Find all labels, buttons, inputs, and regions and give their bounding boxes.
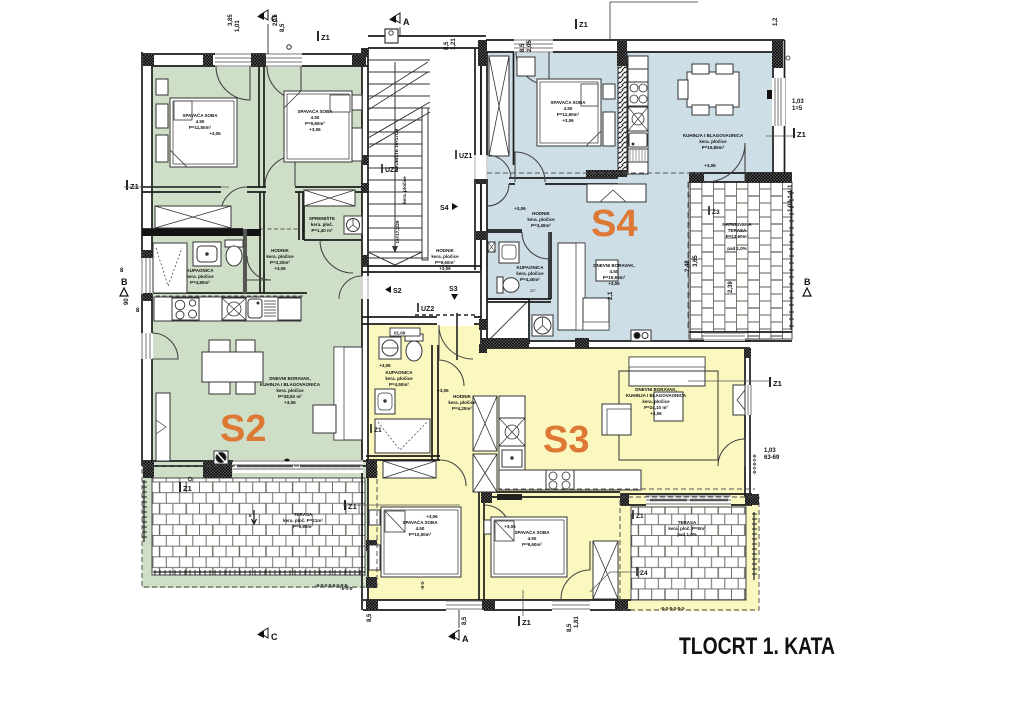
svg-text:kera. pločice: kera. pločice [699,139,727,144]
svg-text:S2: S2 [220,408,266,450]
svg-text:1,03: 1,03 [792,99,804,105]
svg-text:kera. pločice: kera. pločice [527,217,555,222]
svg-text:4.50: 4.50 [311,115,320,120]
svg-text:SPREMIŠTE: SPREMIŠTE [309,214,335,221]
svg-text:P=1,40 m²: P=1,40 m² [311,228,333,233]
svg-text:4.50: 4.50 [564,106,573,111]
svg-text:3,65: 3,65 [693,255,699,267]
svg-text:NATKRIVENA: NATKRIVENA [722,222,752,227]
svg-text:4.50: 4.50 [610,269,619,274]
svg-text:Z1: Z1 [636,513,644,520]
svg-text:+3,06: +3,06 [562,118,574,123]
svg-text:S4: S4 [591,203,637,245]
svg-text:SPAVAĆA SOBA: SPAVAĆA SOBA [182,111,218,118]
svg-text:UZ1: UZ1 [459,153,472,160]
svg-text:S2: S2 [393,288,402,295]
svg-text:SPAVAĆA SOBA: SPAVAĆA SOBA [297,107,333,114]
svg-text:kera. pločice: kera. pločice [276,388,304,393]
svg-text:Z1: Z1 [374,427,382,434]
svg-text:kera. pločice: kera. pločice [642,399,670,404]
svg-text:P=15,80m²: P=15,80m² [702,145,725,150]
svg-text:KUPAONICA: KUPAONICA [187,268,215,273]
svg-text:HODNIK: HODNIK [271,248,289,253]
svg-text:P=9,60m²: P=9,60m² [522,542,542,547]
svg-text:+3,06: +3,06 [704,163,716,168]
svg-text:8,5: 8,5 [367,613,373,622]
svg-text:+3,06: +3,06 [309,127,321,132]
svg-text:s: s [249,513,252,519]
svg-text:P=24,10 m²: P=24,10 m² [644,405,668,410]
svg-text:+3,06: +3,06 [650,411,662,416]
svg-text:8,5: 8,5 [567,623,573,632]
svg-text:KUPAONICA: KUPAONICA [386,370,414,375]
svg-text:P=3,40m²: P=3,40m² [531,223,551,228]
svg-text:TLOCRT 1. KATA: TLOCRT 1. KATA [679,633,835,660]
svg-text:HODNIK: HODNIK [453,394,471,399]
svg-text:2,39: 2,39 [728,281,734,293]
svg-text:2,1: 2,1 [608,291,614,300]
svg-text:P=4,40m²: P=4,40m² [520,277,540,282]
svg-text:C: C [271,632,278,642]
svg-text:Z1: Z1 [522,618,531,627]
svg-text:kera. pločice: kera. pločice [516,271,544,276]
svg-text:A: A [462,634,469,644]
svg-text:Z1: Z1 [183,484,192,493]
svg-text:4.50: 4.50 [528,536,537,541]
svg-text:16×17,2/29: 16×17,2/29 [395,220,400,243]
svg-text:P=12,60m²: P=12,60m² [557,112,580,117]
svg-text:+3,06: +3,06 [284,400,296,405]
svg-text:3,85: 3,85 [228,14,234,26]
svg-text:4.50: 4.50 [416,526,425,531]
svg-text:kera. pločice: kera. pločice [402,176,407,204]
svg-text:P=19,60m²: P=19,60m² [603,275,626,280]
svg-text:C: C [271,14,278,24]
svg-text:+3,06: +3,06 [504,524,516,529]
svg-text:01.00: 01.00 [394,331,406,336]
svg-text:KUHINJA I BLAGOVAONICA: KUHINJA I BLAGOVAONICA [260,382,321,387]
svg-text:1,01: 1,01 [235,20,241,32]
svg-text:P=9,80m²: P=9,80m² [293,524,313,529]
svg-text:kera. pločice: kera. pločice [385,376,413,381]
svg-text:SPAVAĆA SOBA: SPAVAĆA SOBA [402,518,438,525]
svg-text:90: 90 [124,298,130,305]
svg-text:+3,06: +3,06 [514,206,526,211]
svg-text:pad 1,0%: pad 1,0% [727,246,747,251]
svg-text:kera. ploč. P=8m²: kera. ploč. P=8m² [668,526,706,531]
svg-text:·8·0·8·0·8·: ·8·0·8·0·8· [752,453,757,475]
svg-text:kera. pločice: kera. pločice [266,254,294,259]
svg-text:+3,06: +3,06 [209,131,221,136]
svg-text:KUPAONICA: KUPAONICA [517,265,545,270]
svg-text:S4: S4 [440,205,449,212]
svg-text:+3,06: +3,06 [439,266,451,271]
svg-text:Z4: Z4 [640,570,648,577]
svg-text:kera. pločice: kera. pločice [431,254,459,259]
svg-text:P=10,50m²: P=10,50m² [409,532,432,537]
svg-text:KUHINJA I BLAGOVAONICA: KUHINJA I BLAGOVAONICA [683,133,744,138]
svg-text:kera. pločice: kera. pločice [448,400,476,405]
svg-text:HODNIK: HODNIK [436,248,454,253]
svg-text:·8·0·8·: ·8·0·8· [340,586,354,591]
svg-text:8,5: 8,5 [520,43,526,52]
svg-text:S3: S3 [449,286,458,293]
svg-text:TERASA: TERASA [294,512,313,517]
svg-text:Z1: Z1 [348,502,357,511]
svg-text:1,03: 1,03 [764,448,776,454]
svg-text:·8·0·: ·8·0· [420,580,425,590]
svg-text:1,2: 1,2 [773,17,779,26]
svg-text:+3,06: +3,06 [426,514,438,519]
svg-text:kera. ploč. P=21m²: kera. ploč. P=21m² [283,518,323,523]
svg-text:8,5: 8,5 [462,616,468,625]
svg-text:·8·0·8·0·8·0·: ·8·0·8·0·8·0· [660,606,686,611]
svg-text:+3,06: +3,06 [437,388,449,393]
svg-text:Z3: Z3 [712,209,720,216]
svg-text:Z1: Z1 [130,182,139,191]
svg-text:S3: S3 [543,419,589,461]
svg-text:1,81: 1,81 [574,616,580,628]
svg-text:P=11,50m²: P=11,50m² [189,125,212,130]
svg-text:TERASA: TERASA [728,228,747,233]
svg-text:P=13,60m²: P=13,60m² [726,234,749,239]
svg-text:HODNIK: HODNIK [532,211,550,216]
svg-text:DNEVNI BORAVAK,: DNEVNI BORAVAK, [593,263,635,268]
svg-text:Z1: Z1 [773,379,782,388]
svg-text:1=5: 1=5 [792,106,803,112]
svg-text:pad 1,0%: pad 1,0% [677,532,697,537]
svg-text:DNEVNI BORAVAK,: DNEVNI BORAVAK, [635,387,677,392]
svg-text:P=3,20m²: P=3,20m² [270,260,290,265]
svg-text:2,05: 2,05 [527,40,533,52]
svg-text:42°: 42° [530,288,537,293]
svg-text:8,5: 8,5 [280,23,286,32]
svg-text:SPAVAĆA SOBA: SPAVAĆA SOBA [550,98,586,105]
svg-text:UZ2: UZ2 [421,306,434,313]
svg-text:B: B [804,277,811,287]
svg-text:P=4,80m²: P=4,80m² [190,280,210,285]
svg-text:Z1: Z1 [321,33,330,42]
svg-text:kera. ploč.: kera. ploč. [311,222,333,227]
svg-text:P=9,80m²: P=9,80m² [305,121,325,126]
svg-text:Z1: Z1 [797,130,806,139]
svg-text:P=28,50 m²: P=28,50 m² [278,394,302,399]
svg-text:1,21: 1,21 [451,38,457,50]
svg-text:B: B [121,277,128,287]
svg-text:4.50: 4.50 [196,119,205,124]
svg-text:+3,06: +3,06 [274,266,286,271]
svg-text:STUBIŠTE 16×17/29: STUBIŠTE 16×17/29 [392,128,399,171]
svg-text:2,48: 2,48 [685,260,691,272]
svg-text:TERASA: TERASA [678,520,697,525]
svg-text:DNEVNI BORAVAK,: DNEVNI BORAVAK, [269,376,311,381]
svg-text:UZ2: UZ2 [385,167,398,174]
svg-text:+3,06: +3,06 [379,363,391,368]
svg-text:Z1: Z1 [579,20,588,29]
svg-text:63-69: 63-69 [764,455,780,461]
svg-text:kera. pločice: kera. pločice [186,274,214,279]
svg-text:A: A [403,17,410,27]
svg-text:P=9,60m²: P=9,60m² [435,260,455,265]
svg-text:+3,06: +3,06 [608,281,620,286]
svg-text:SPAVAĆA SOBA: SPAVAĆA SOBA [514,528,550,535]
svg-text:8,5: 8,5 [444,41,450,50]
svg-text:P=4,20m²: P=4,20m² [452,406,472,411]
svg-text:KUHINJA I BLAGOVAONICA: KUHINJA I BLAGOVAONICA [626,393,687,398]
svg-text:P=4,50m²: P=4,50m² [389,382,409,387]
